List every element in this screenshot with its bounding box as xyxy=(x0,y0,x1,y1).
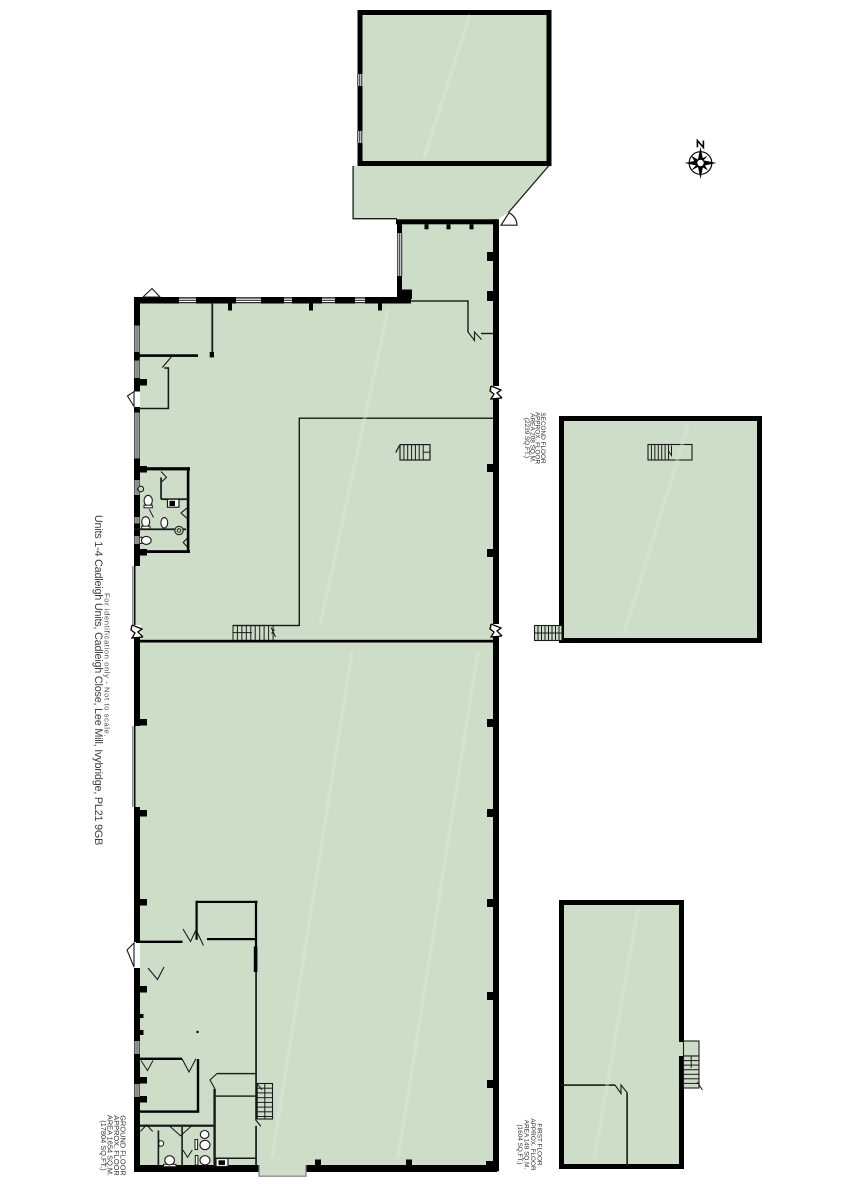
svg-text:(2239 SQ.FT.): (2239 SQ.FT.) xyxy=(523,418,530,458)
svg-text:For identification only - Not: For identification only - Not to scale. xyxy=(103,593,112,737)
svg-text:(1604 SQ.FT.): (1604 SQ.FT.) xyxy=(516,1124,523,1164)
svg-text:(17804 SQ.FT.): (17804 SQ.FT.) xyxy=(99,1120,108,1171)
svg-text:Units 1-4 Cadleigh Units, Cadl: Units 1-4 Cadleigh Units, Cadleigh Close… xyxy=(92,515,104,845)
